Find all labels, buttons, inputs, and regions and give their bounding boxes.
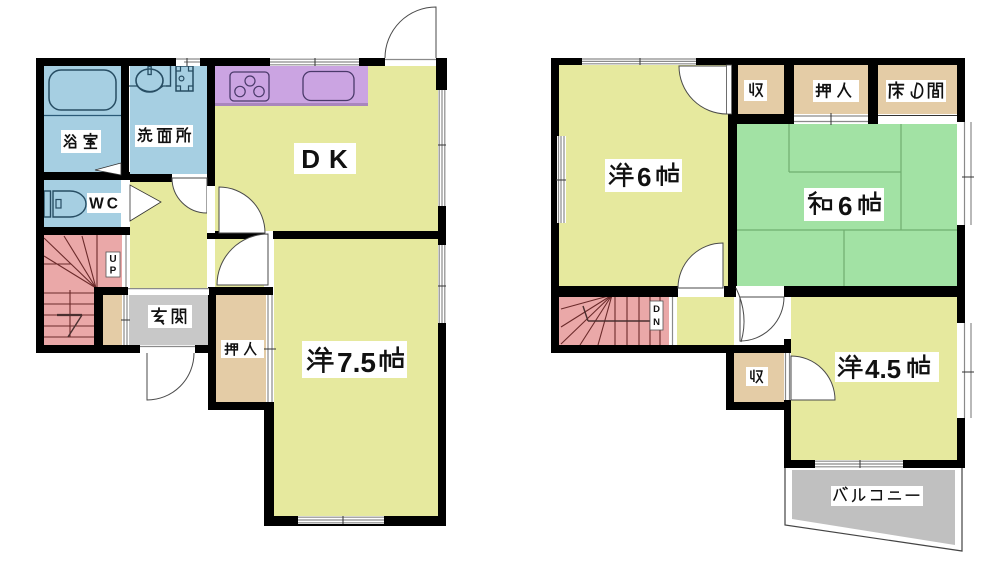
svg-text:DK: DK xyxy=(301,144,357,174)
svg-text:7.5: 7.5 xyxy=(337,347,376,378)
svg-text:P: P xyxy=(110,266,117,277)
svg-text:6: 6 xyxy=(637,162,651,192)
svg-text:N: N xyxy=(653,317,660,328)
svg-text:6: 6 xyxy=(838,191,852,221)
svg-text:WC: WC xyxy=(89,196,121,213)
svg-text:4.5: 4.5 xyxy=(865,354,901,384)
svg-text:D: D xyxy=(653,304,660,315)
svg-text:U: U xyxy=(109,254,116,265)
